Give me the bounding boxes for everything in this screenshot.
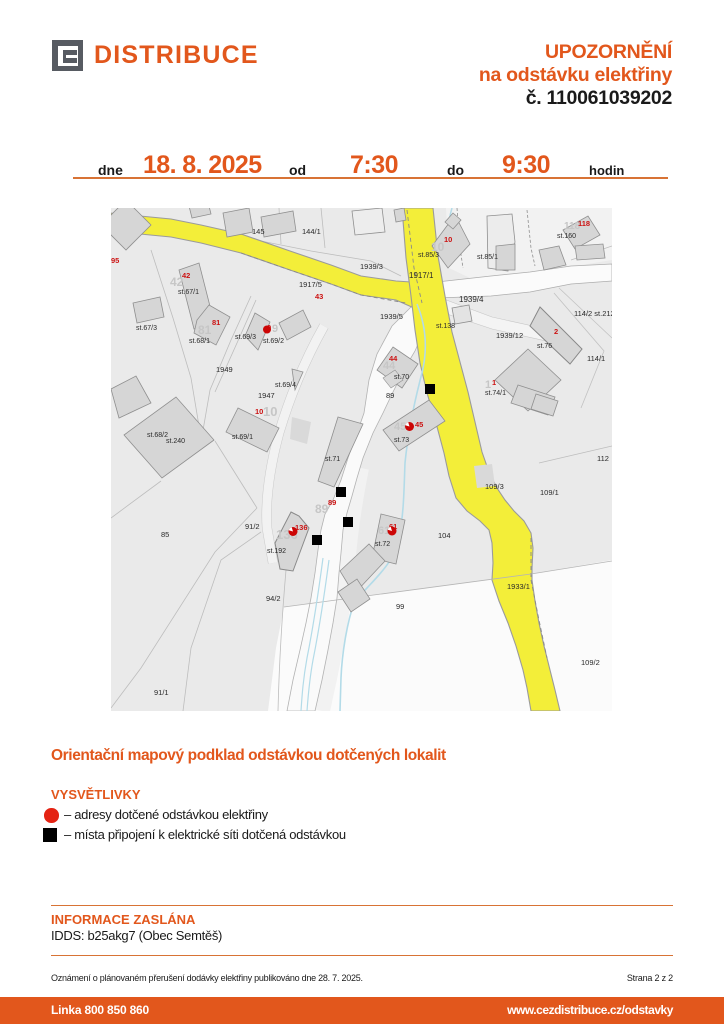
svg-text:10: 10 (255, 407, 263, 416)
svg-text:st.69/1: st.69/1 (232, 434, 253, 441)
svg-text:89: 89 (386, 391, 394, 400)
svg-text:1917/1: 1917/1 (409, 271, 434, 280)
svg-text:st.76: st.76 (537, 343, 552, 350)
svg-text:st.160: st.160 (557, 233, 576, 240)
svg-text:10: 10 (263, 404, 277, 419)
svg-text:89: 89 (328, 498, 336, 507)
svg-text:st.68/1: st.68/1 (189, 338, 210, 345)
svg-text:1933/1: 1933/1 (507, 582, 530, 591)
svg-text:44: 44 (389, 354, 398, 363)
svg-text:st.73: st.73 (394, 437, 409, 444)
svg-text:91/2: 91/2 (245, 522, 260, 531)
svg-text:94/2: 94/2 (266, 594, 281, 603)
svg-text:st.72: st.72 (375, 541, 390, 548)
svg-text:81: 81 (212, 318, 220, 327)
svg-text:st.85/1: st.85/1 (477, 254, 498, 261)
svg-text:118: 118 (578, 219, 590, 228)
svg-text:9: 9 (272, 323, 278, 335)
svg-text:1917/5: 1917/5 (299, 280, 322, 289)
svg-text:1947: 1947 (258, 391, 275, 400)
svg-text:95: 95 (111, 256, 119, 265)
svg-text:st.71: st.71 (325, 456, 340, 463)
svg-text:114/1: 114/1 (587, 354, 605, 363)
svg-text:112: 112 (597, 454, 609, 463)
svg-text:st.192: st.192 (267, 548, 286, 555)
svg-text:2: 2 (554, 327, 558, 336)
svg-text:91/1: 91/1 (154, 688, 169, 697)
svg-text:1: 1 (485, 379, 491, 391)
svg-text:st.74/1: st.74/1 (485, 390, 506, 397)
svg-text:42: 42 (182, 271, 190, 280)
svg-text:1939/12: 1939/12 (496, 331, 523, 340)
svg-text:1939/3: 1939/3 (360, 262, 383, 271)
svg-text:st.67/3: st.67/3 (136, 325, 157, 332)
svg-text:1939/4: 1939/4 (459, 295, 484, 304)
svg-text:81: 81 (198, 323, 212, 337)
svg-text:st.67/1: st.67/1 (178, 289, 199, 296)
svg-text:109/1: 109/1 (540, 488, 559, 497)
svg-text:10: 10 (444, 235, 452, 244)
svg-text:104: 104 (438, 531, 451, 540)
svg-text:st.138: st.138 (436, 323, 455, 330)
svg-text:109/2: 109/2 (581, 658, 600, 667)
svg-text:114/2 st.212.: 114/2 st.212. (574, 309, 612, 318)
svg-text:45: 45 (394, 421, 406, 433)
svg-text:1949: 1949 (216, 365, 233, 374)
svg-text:1: 1 (492, 378, 496, 387)
svg-text:89: 89 (315, 502, 329, 516)
svg-text:st.70: st.70 (394, 374, 409, 381)
svg-text:85: 85 (161, 530, 169, 539)
svg-text:1939/5: 1939/5 (380, 312, 403, 321)
svg-text:10: 10 (431, 240, 445, 254)
svg-text:st.69/2: st.69/2 (263, 338, 284, 345)
svg-text:st.69/3: st.69/3 (235, 334, 256, 341)
svg-text:st.69/4: st.69/4 (275, 382, 296, 389)
svg-text:45: 45 (415, 420, 423, 429)
svg-text:144/1: 144/1 (302, 227, 321, 236)
svg-text:st.240: st.240 (166, 438, 185, 445)
svg-text:99: 99 (396, 602, 404, 611)
svg-text:109/3: 109/3 (485, 482, 504, 491)
svg-text:st.68/2: st.68/2 (147, 432, 168, 439)
svg-text:145: 145 (252, 227, 265, 236)
svg-text:43: 43 (315, 292, 323, 301)
